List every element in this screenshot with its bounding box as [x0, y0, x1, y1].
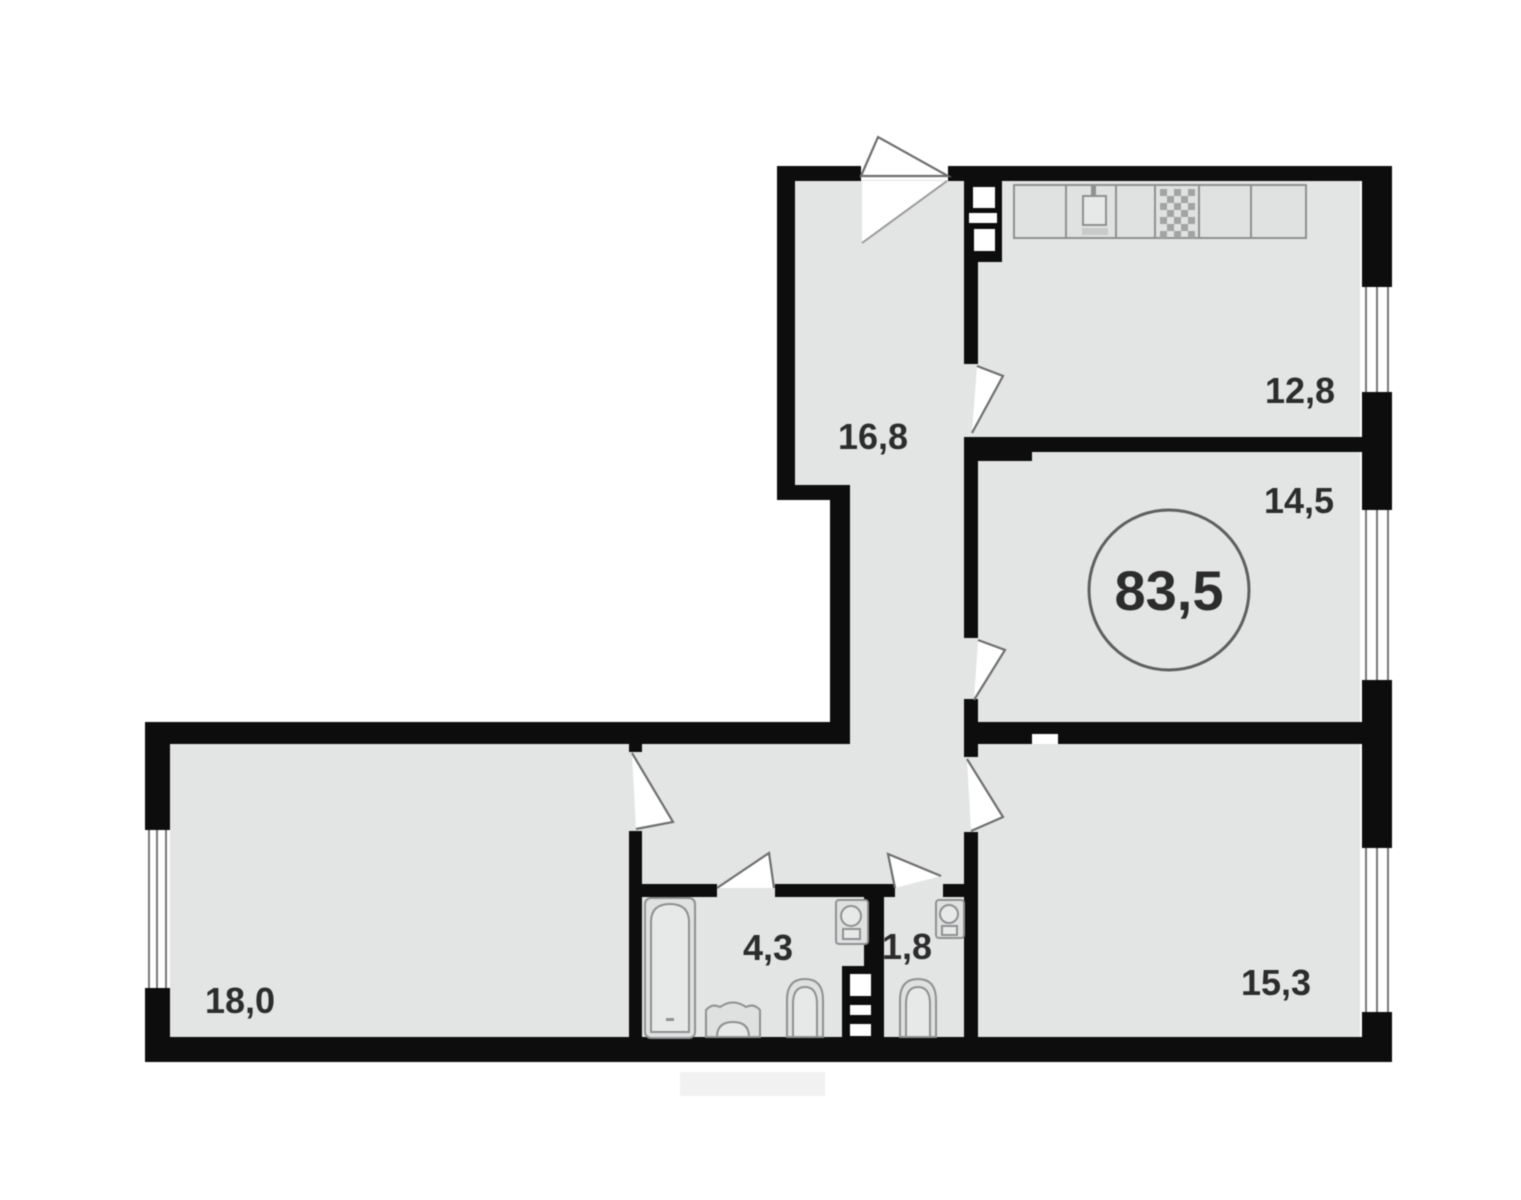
svg-text:14,5: 14,5 [1264, 480, 1334, 521]
svg-text:12,8: 12,8 [1265, 370, 1335, 411]
svg-text:4,3: 4,3 [743, 927, 793, 968]
svg-text:18,0: 18,0 [205, 980, 275, 1021]
svg-text:16,8: 16,8 [838, 416, 908, 457]
svg-text:1,8: 1,8 [882, 926, 932, 967]
svg-text:83,5: 83,5 [1115, 559, 1224, 622]
svg-text:15,3: 15,3 [1241, 962, 1311, 1003]
